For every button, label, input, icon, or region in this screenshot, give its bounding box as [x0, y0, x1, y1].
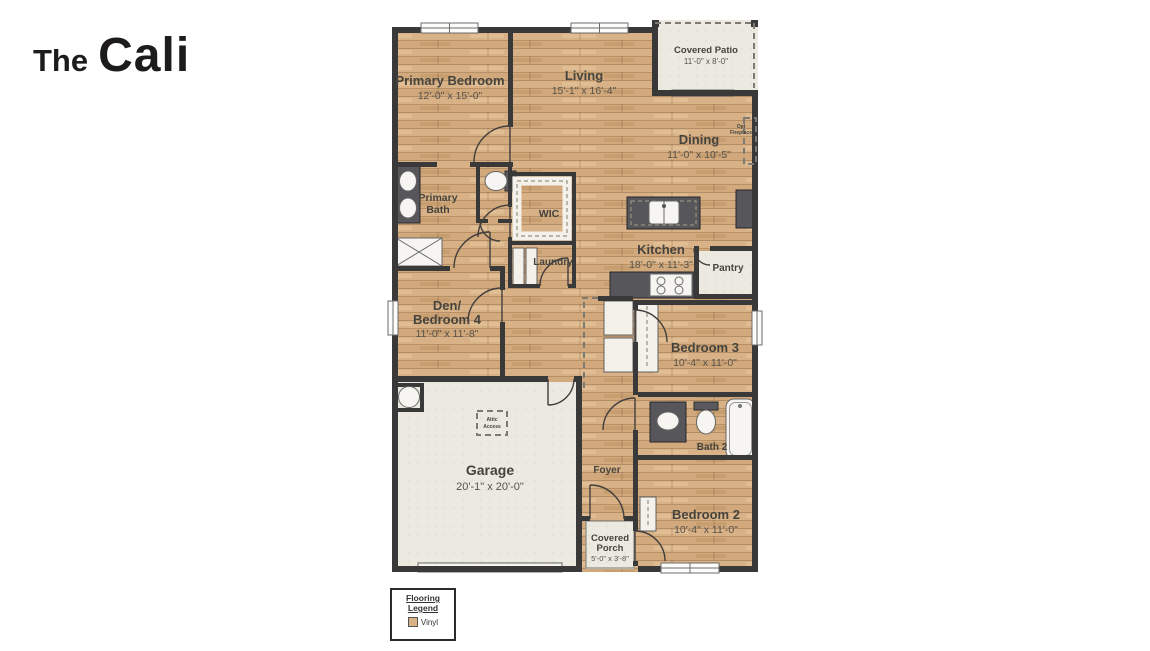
covered-patio-label: Covered Patio [674, 45, 738, 56]
den-bedroom4-dims: 11'-0" x 11'-8" [415, 328, 478, 340]
flooring-legend: Flooring Legend Vinyl [390, 588, 456, 641]
primary-bedroom-dims: 12'-0" x 15'-0" [418, 90, 483, 102]
bedroom2-label: Bedroom 2 [672, 507, 740, 522]
water-heater-icon [399, 387, 420, 408]
laundry-label: Laundry [533, 257, 573, 268]
attic-access-note: Attic [486, 417, 497, 423]
bathtub-icon [726, 399, 755, 459]
kitchen-label: Kitchen [637, 242, 685, 257]
sink-icon [657, 412, 679, 430]
legend-item-vinyl: Vinyl [392, 617, 454, 627]
dining-dims: 11'-0" x 10'-5" [667, 149, 731, 161]
legend-title-line1: Flooring [392, 593, 454, 603]
stove-icon [650, 274, 692, 296]
attic-access-note: Access [483, 424, 501, 430]
bath2-label: Bath 2 [697, 442, 728, 453]
covered-patio-dims: 11'-0" x 8'-0" [684, 57, 728, 66]
living-dims: 15'-1" x 16'-4" [552, 85, 617, 97]
washer-icon [513, 248, 524, 286]
foyer-closet [604, 301, 633, 335]
wic-label: WIC [539, 208, 560, 220]
floor-plan-page: The Cali [0, 0, 1150, 651]
foyer-label: Foyer [593, 465, 620, 476]
bedroom3-dims: 10'-4" x 11'-0" [673, 357, 737, 369]
floor-plan-svg: Primary Bedroom 12'-0" x 15'-0" Living 1… [0, 0, 1150, 651]
toilet-icon [697, 410, 716, 434]
den-bedroom4-label: Bedroom 4 [413, 312, 482, 327]
sink-icon [400, 171, 417, 191]
garage-dims: 20'-1" x 20'-0" [456, 481, 524, 493]
bedroom2-dims: 10'-4" x 11'-0" [674, 524, 738, 536]
dining-label: Dining [679, 132, 719, 147]
primary-bath-label: Primary [418, 192, 457, 204]
opt-fireplace-note: Fireplace [730, 130, 752, 136]
pantry-label: Pantry [712, 263, 744, 274]
foyer-closet [604, 338, 633, 372]
kitchen-dims: 18'-0" x 11'-3" [629, 259, 693, 271]
primary-bath-label: Bath [426, 204, 449, 216]
vinyl-swatch-icon [408, 617, 418, 627]
legend-title-line2: Legend [392, 603, 454, 613]
legend-title: Flooring Legend [392, 593, 454, 613]
covered-porch-label: Porch [597, 543, 624, 554]
toilet-icon [694, 402, 718, 410]
toilet-icon [485, 172, 507, 191]
covered-porch-dims: 5'-0" x 3'-8" [591, 554, 629, 563]
den-bedroom4-label: Den/ [433, 298, 462, 313]
sink-icon [400, 198, 417, 218]
bedroom3-label: Bedroom 3 [671, 340, 739, 355]
garage-label: Garage [466, 462, 514, 478]
vinyl-label: Vinyl [421, 618, 438, 627]
primary-bedroom-label: Primary Bedroom [395, 73, 504, 88]
living-label: Living [565, 68, 603, 83]
